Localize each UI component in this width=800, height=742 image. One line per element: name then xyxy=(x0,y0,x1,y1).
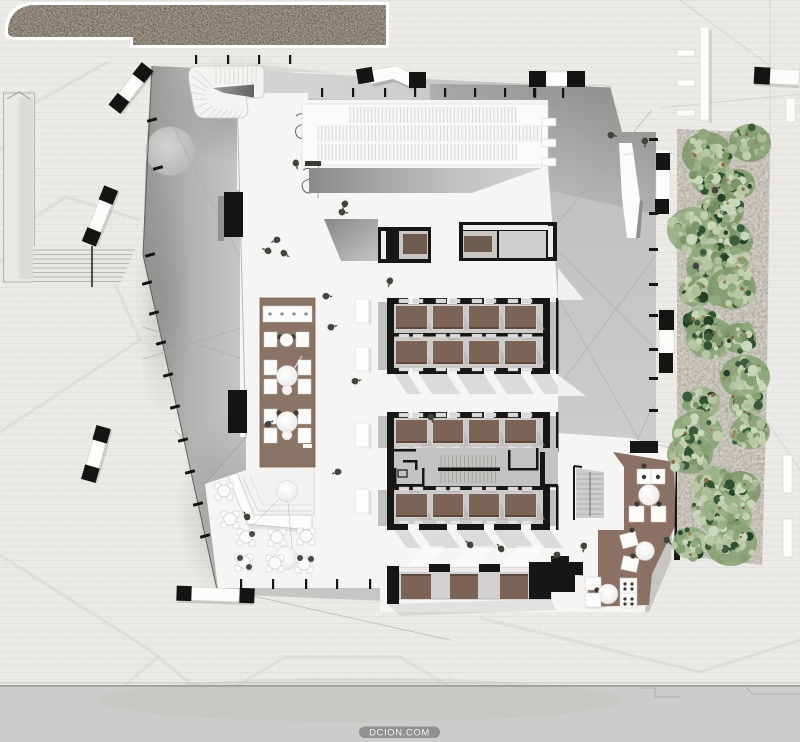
svg-text:DCION.COM: DCION.COM xyxy=(369,728,430,739)
